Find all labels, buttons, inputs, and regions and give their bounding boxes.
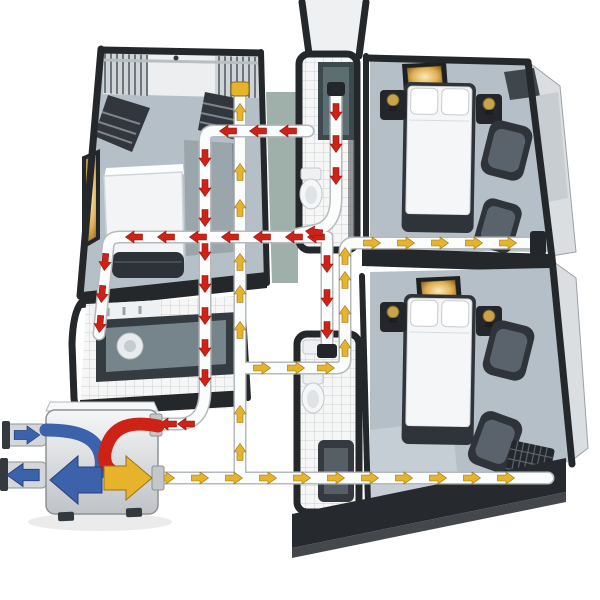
unit-foot: [58, 512, 74, 522]
ceiling-fixture: [174, 56, 179, 61]
ventilation-diagram: [0, 0, 600, 600]
bedroom-top-top-wall: [368, 58, 528, 62]
nightstand: [380, 302, 406, 332]
bed: [401, 82, 476, 233]
isometric-floorplan: [0, 0, 600, 600]
bathtub-drain-center: [124, 340, 136, 352]
shower-room-side-shade: [348, 140, 355, 244]
corridor-floor: [266, 92, 298, 283]
supply-outlet-collar: [152, 466, 164, 490]
intake-duct-cap: [2, 421, 10, 449]
vanity-top: [324, 448, 348, 494]
unit-foot: [126, 508, 142, 518]
extract-wall-grille: [317, 344, 337, 358]
living-room-top-wall: [102, 50, 260, 53]
supply-ceiling-diffuser: [231, 82, 249, 96]
heat-recovery-unit: [0, 402, 172, 531]
toilet: [300, 168, 322, 209]
nightstand: [476, 94, 502, 124]
bed: [401, 294, 476, 445]
supply-wall-grille: [530, 231, 546, 255]
unit-shadow: [28, 513, 172, 531]
sofa: [112, 252, 184, 278]
upper-wall-face: [305, 0, 363, 50]
extract-ceiling-vent: [327, 82, 345, 96]
bedroom-bottom-left-wall: [362, 276, 368, 505]
nightstand: [380, 90, 406, 120]
toilet: [302, 372, 324, 413]
